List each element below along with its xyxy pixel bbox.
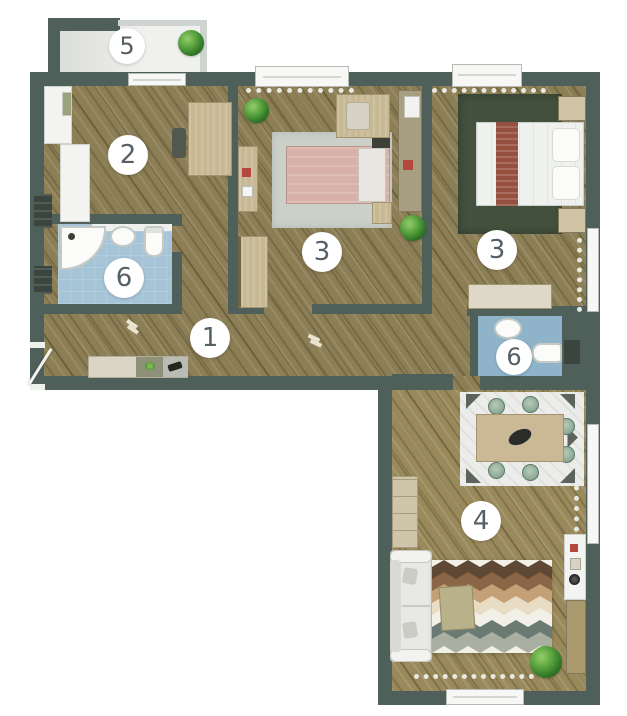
wall-bath-right-left (470, 316, 478, 376)
dresser-decor-white (242, 186, 253, 197)
balcony-door (128, 73, 186, 86)
curtain-bedroom-middle (246, 88, 354, 93)
duct-shaft-upper (34, 194, 52, 228)
wall-bath-left-right-b (172, 252, 182, 308)
window-pane (263, 76, 340, 78)
curtain-bedroom-right (432, 88, 546, 93)
dining-chair (522, 464, 539, 481)
exterior-wall-bottom-main-right (480, 376, 600, 390)
room-badge-bedroom-right: 3 (477, 230, 517, 270)
dining-chair (488, 462, 505, 479)
sofa-back (390, 560, 401, 652)
wall-bedroom3-bedroom3 (422, 86, 432, 314)
bedroom2-dresser (188, 102, 232, 176)
plant-bedroom-middle-bottom (400, 215, 426, 241)
room-badge-bathroom-left: 6 (104, 258, 144, 298)
coffee-table (439, 585, 476, 631)
dining-chair (488, 398, 505, 415)
floor-plan: 5 2 3 3 6 1 6 4 (0, 0, 627, 716)
curtain-bedroom-right-side (577, 228, 582, 312)
window-bedroom-right (452, 64, 522, 87)
bed-right-runner (496, 122, 518, 206)
wardrobe-right-decor-red (403, 160, 413, 170)
bed-right-pillow-a (552, 128, 580, 162)
plant-bedroom-middle-top (244, 98, 269, 123)
room-badge-hallway: 1 (190, 318, 230, 358)
wardrobe-middle-bottom (238, 236, 268, 308)
wall-hall-bedroom3-b (312, 304, 426, 314)
window-bedroom-middle (255, 66, 349, 87)
room-badge-bedroom-middle: 3 (302, 232, 342, 272)
tv-decor-photo (570, 558, 581, 570)
console-plant-icon (145, 362, 155, 370)
room-badge-balcony: 5 (109, 28, 145, 64)
sofa-pillow (402, 567, 419, 585)
nightstand-middle (372, 202, 392, 224)
window-bedroom-right-side (587, 228, 599, 312)
tv-decor-red (570, 544, 578, 552)
bookshelf (392, 476, 418, 548)
room-badge-bathroom-right: 6 (496, 339, 532, 375)
passage-floor (453, 376, 480, 390)
nightstand-right-bottom (558, 208, 586, 233)
bedroom2-chair (172, 128, 186, 158)
dresser-decor-red (242, 168, 251, 177)
sofa-pillow (402, 621, 418, 639)
window-dining-side (587, 424, 599, 544)
bed-right-pillow-b (552, 166, 580, 200)
wall-bath-left-right-a (172, 214, 182, 226)
balcony-plant-icon (178, 30, 204, 56)
wall-hall-bath-left-bottom (44, 304, 182, 314)
room-badge-bedroom-left: 2 (108, 135, 148, 175)
bed-middle-pillows (358, 148, 386, 202)
balcony-railing-top (118, 20, 206, 26)
washbasin-right (494, 318, 522, 339)
wall-hall-living-stub (392, 374, 453, 390)
washbasin-left (110, 226, 136, 247)
window-living-bottom (446, 689, 524, 705)
toilet-left-tank (146, 228, 162, 233)
balcony-wall-left (48, 18, 60, 74)
dining-chair (522, 396, 539, 413)
tv-cabinet-khaki (566, 600, 586, 674)
room-badge-living: 4 (461, 501, 501, 541)
wardrobe-lower (60, 144, 90, 222)
wardrobe-detail (62, 92, 72, 116)
duct-shaft-lower (34, 266, 52, 294)
desk-chair-middle (346, 102, 370, 130)
entrance-door-jamb-bottom (30, 384, 45, 390)
sofa-cushion-split (402, 605, 430, 607)
toilet-right-niche (564, 340, 580, 364)
dresser-middle-left (238, 146, 258, 212)
speaker-icon (569, 574, 580, 585)
balcony-door-pane (133, 79, 180, 81)
entrance-door-jamb-top (30, 342, 45, 348)
shower-head-icon (68, 233, 75, 240)
nightstand-right-top (558, 96, 586, 121)
window-pane (458, 74, 515, 76)
curtain-living-bottom (414, 674, 534, 679)
dresser-bedroom-right (468, 284, 552, 309)
wardrobe-right-decor (404, 96, 420, 118)
plant-living (530, 646, 562, 678)
toilet-right (532, 343, 562, 363)
window-pane (453, 696, 517, 698)
